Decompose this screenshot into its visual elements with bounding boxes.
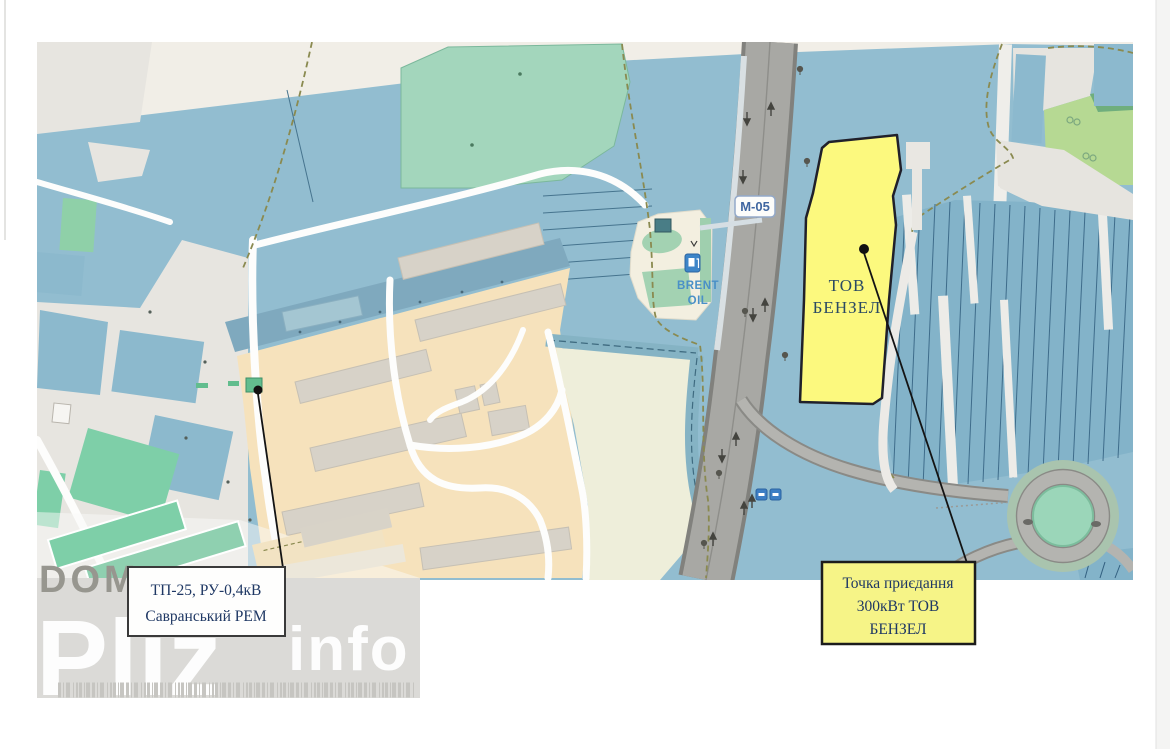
gas-station-name-line1: BRENT <box>677 280 719 292</box>
page: ТОВ БЕНЗЕЛ М-05 BRENT OIL <box>0 0 1170 749</box>
connection-label-line2: 300кВт ТОВ <box>857 598 940 615</box>
tp-label-line2: Савранський РЕМ <box>145 608 266 625</box>
target-parcel-label-line2: БЕНЗЕЛ <box>813 298 882 317</box>
roundabout <box>1007 460 1119 572</box>
watermark-word1: DOM <box>39 559 140 601</box>
tp-label-box: ТП-25, РУ-0,4кВ Савранський РЕМ <box>128 567 285 636</box>
connection-label-box: Точка приєдання 300кВт ТОВ БЕНЗЕЛ <box>822 562 975 644</box>
m05-shield: М-05 <box>735 196 775 217</box>
m05-shield-label: М-05 <box>740 199 770 214</box>
connection-label-line1: Точка приєдання <box>843 575 954 592</box>
tp-marker-dot <box>254 386 263 395</box>
fuel-icon <box>685 254 700 272</box>
map-figure: ТОВ БЕНЗЕЛ М-05 BRENT OIL <box>0 0 1170 749</box>
tp-label-line1: ТП-25, РУ-0,4кВ <box>151 582 262 599</box>
gas-station-name-line2: OIL <box>688 295 709 307</box>
connection-label-line3: БЕНЗЕЛ <box>869 621 927 638</box>
watermark-word3: info <box>288 615 410 684</box>
target-parcel-label-line1: ТОВ <box>829 276 866 295</box>
station-building <box>655 219 671 232</box>
map-canvas: ТОВ БЕНЗЕЛ М-05 BRENT OIL <box>32 42 1133 580</box>
connection-marker-dot <box>859 244 869 254</box>
